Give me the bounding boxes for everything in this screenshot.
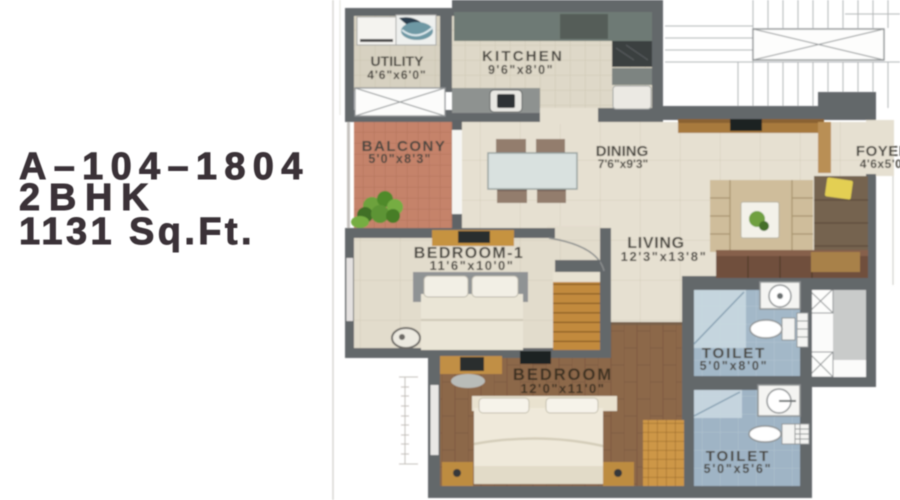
svg-text:4'6"x6'0": 4'6"x6'0" — [367, 68, 426, 82]
svg-text:5'0"x8'3": 5'0"x8'3" — [368, 152, 431, 166]
svg-text:UTILITY: UTILITY — [371, 53, 425, 69]
svg-text:4'6x5'0: 4'6x5'0 — [860, 157, 900, 171]
svg-text:9'6"x8'0": 9'6"x8'0" — [488, 63, 554, 77]
svg-text:7'6"x9'3": 7'6"x9'3" — [598, 157, 648, 171]
svg-text:5'0"x8'0": 5'0"x8'0" — [700, 359, 769, 373]
svg-text:12'0"x11'0": 12'0"x11'0" — [521, 381, 606, 396]
svg-text:12'3"x13'8": 12'3"x13'8" — [621, 249, 708, 264]
svg-text:11'6"x10'0": 11'6"x10'0" — [430, 258, 515, 273]
svg-text:5'0"x5'6": 5'0"x5'6" — [704, 462, 773, 476]
svg-text:1131 Sq.Ft.: 1131 Sq.Ft. — [19, 211, 255, 253]
